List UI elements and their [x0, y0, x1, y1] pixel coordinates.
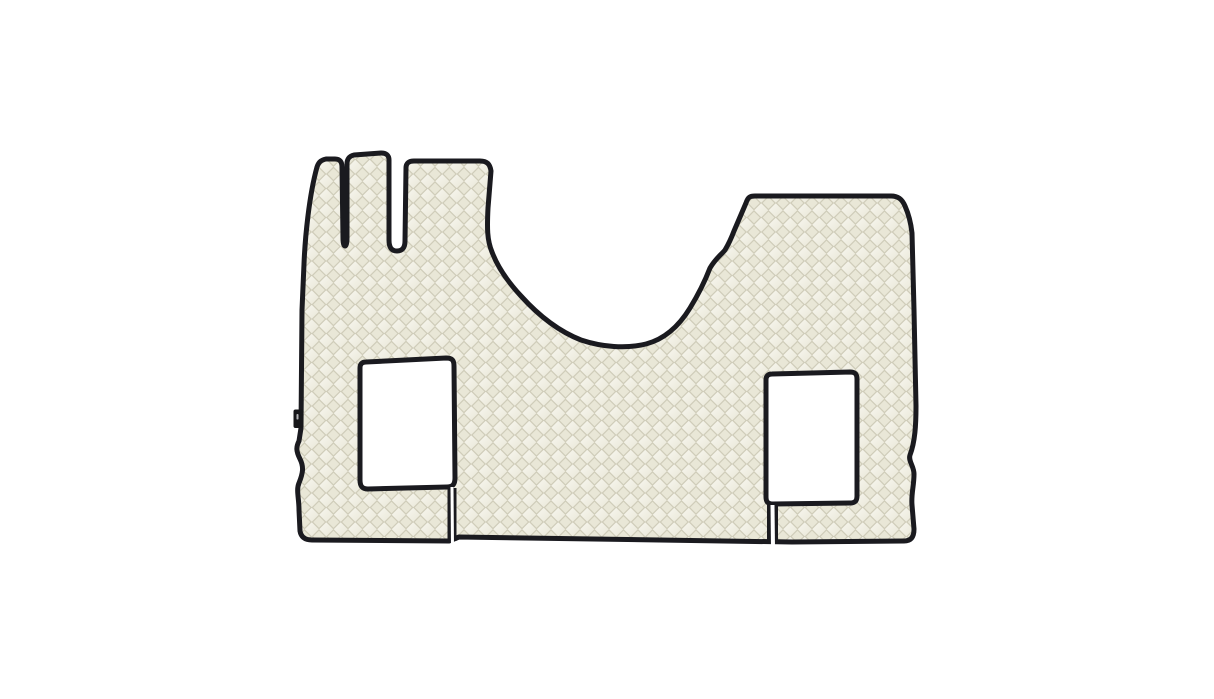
floor-mat-illustration — [0, 0, 1214, 699]
left-piece-seam — [452, 487, 453, 547]
product-image-canvas: Quilted eco-leather truck cabin floor ma… — [0, 0, 1214, 699]
floor-mat-product-photo: Quilted eco-leather truck cabin floor ma… — [0, 0, 1214, 699]
floor-mat-shape — [297, 153, 916, 542]
brand-tag — [294, 410, 304, 429]
right-piece-seam — [773, 504, 774, 548]
